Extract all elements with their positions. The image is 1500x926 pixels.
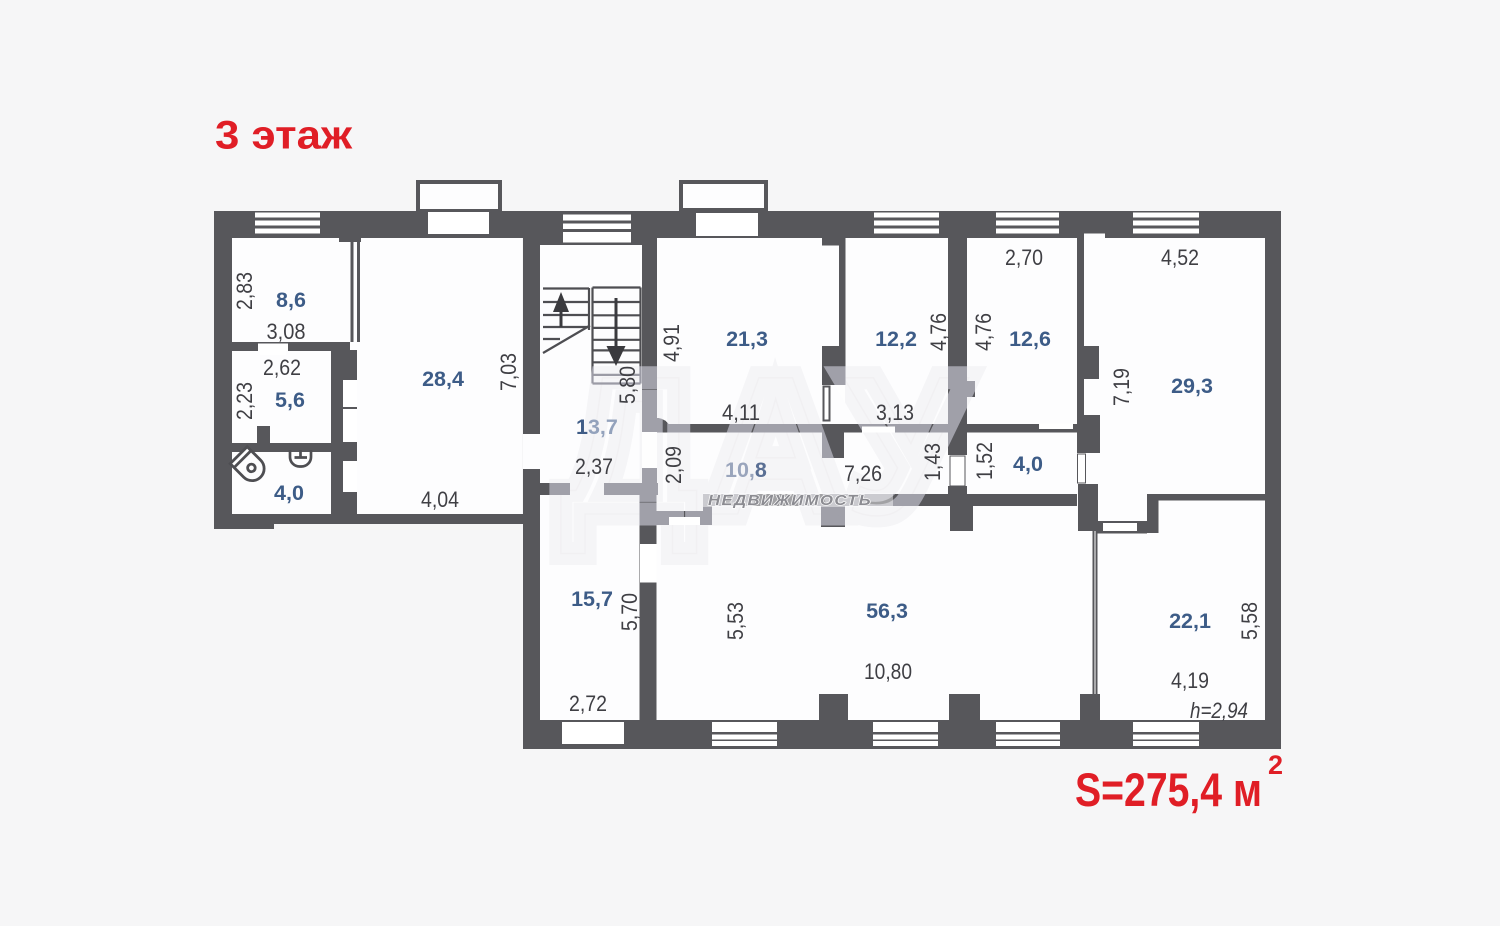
svg-text:56,3: 56,3 xyxy=(866,599,908,623)
svg-text:15,7: 15,7 xyxy=(571,587,613,611)
svg-text:4,76: 4,76 xyxy=(926,313,951,351)
svg-text:7,03: 7,03 xyxy=(496,353,521,391)
svg-text:2: 2 xyxy=(1268,750,1283,780)
svg-text:4,0: 4,0 xyxy=(1013,452,1043,476)
svg-text:1,52: 1,52 xyxy=(972,442,997,480)
svg-text:4,52: 4,52 xyxy=(1161,245,1199,270)
svg-text:21,3: 21,3 xyxy=(726,327,768,351)
svg-text:h=2,94: h=2,94 xyxy=(1190,698,1248,723)
svg-text:2,62: 2,62 xyxy=(263,355,301,380)
svg-text:5,6: 5,6 xyxy=(275,388,305,412)
svg-text:5,70: 5,70 xyxy=(617,593,642,631)
svg-text:5,80: 5,80 xyxy=(615,366,640,404)
svg-text:29,3: 29,3 xyxy=(1171,374,1213,398)
svg-text:4,04: 4,04 xyxy=(421,487,459,512)
svg-text:4,19: 4,19 xyxy=(1171,668,1209,693)
svg-text:28,4: 28,4 xyxy=(422,367,464,391)
svg-text:3,08: 3,08 xyxy=(267,319,306,344)
svg-text:7,26: 7,26 xyxy=(844,461,882,486)
svg-text:10,80: 10,80 xyxy=(864,659,912,684)
svg-text:4,0: 4,0 xyxy=(274,481,304,505)
svg-text:5,53: 5,53 xyxy=(723,602,748,640)
svg-text:3 этаж: 3 этаж xyxy=(215,114,353,158)
svg-text:13,7: 13,7 xyxy=(576,415,618,439)
svg-text:S=275,4 м: S=275,4 м xyxy=(1075,763,1262,816)
svg-text:2,09: 2,09 xyxy=(661,446,686,484)
svg-text:4,91: 4,91 xyxy=(659,324,684,362)
svg-text:2,37: 2,37 xyxy=(575,454,613,479)
svg-text:2,23: 2,23 xyxy=(232,382,257,420)
svg-text:5,58: 5,58 xyxy=(1237,602,1262,640)
svg-text:10,8: 10,8 xyxy=(725,458,767,482)
svg-text:2,70: 2,70 xyxy=(1005,245,1043,270)
svg-text:1,43: 1,43 xyxy=(920,443,945,481)
svg-text:3,13: 3,13 xyxy=(876,400,914,425)
svg-text:8,6: 8,6 xyxy=(276,288,306,312)
svg-text:4,11: 4,11 xyxy=(722,400,760,425)
svg-text:2,72: 2,72 xyxy=(569,691,607,716)
svg-text:2,83: 2,83 xyxy=(232,272,257,310)
svg-text:12,6: 12,6 xyxy=(1009,327,1051,351)
svg-text:12,2: 12,2 xyxy=(875,327,917,351)
svg-text:7,19: 7,19 xyxy=(1109,368,1134,406)
svg-text:22,1: 22,1 xyxy=(1169,609,1211,633)
svg-text:НЕДВИЖИМОСТЬ: НЕДВИЖИМОСТЬ xyxy=(708,493,872,509)
svg-text:4,76: 4,76 xyxy=(971,313,996,351)
